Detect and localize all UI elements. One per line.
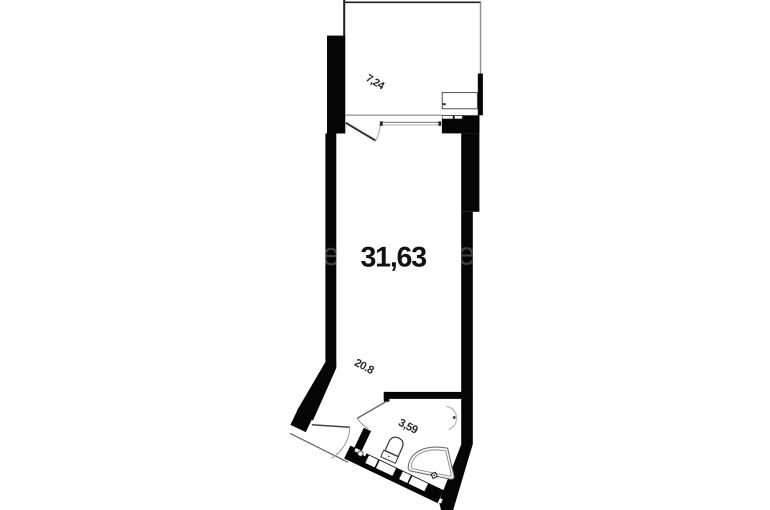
svg-text:31,63: 31,63 — [361, 242, 427, 274]
